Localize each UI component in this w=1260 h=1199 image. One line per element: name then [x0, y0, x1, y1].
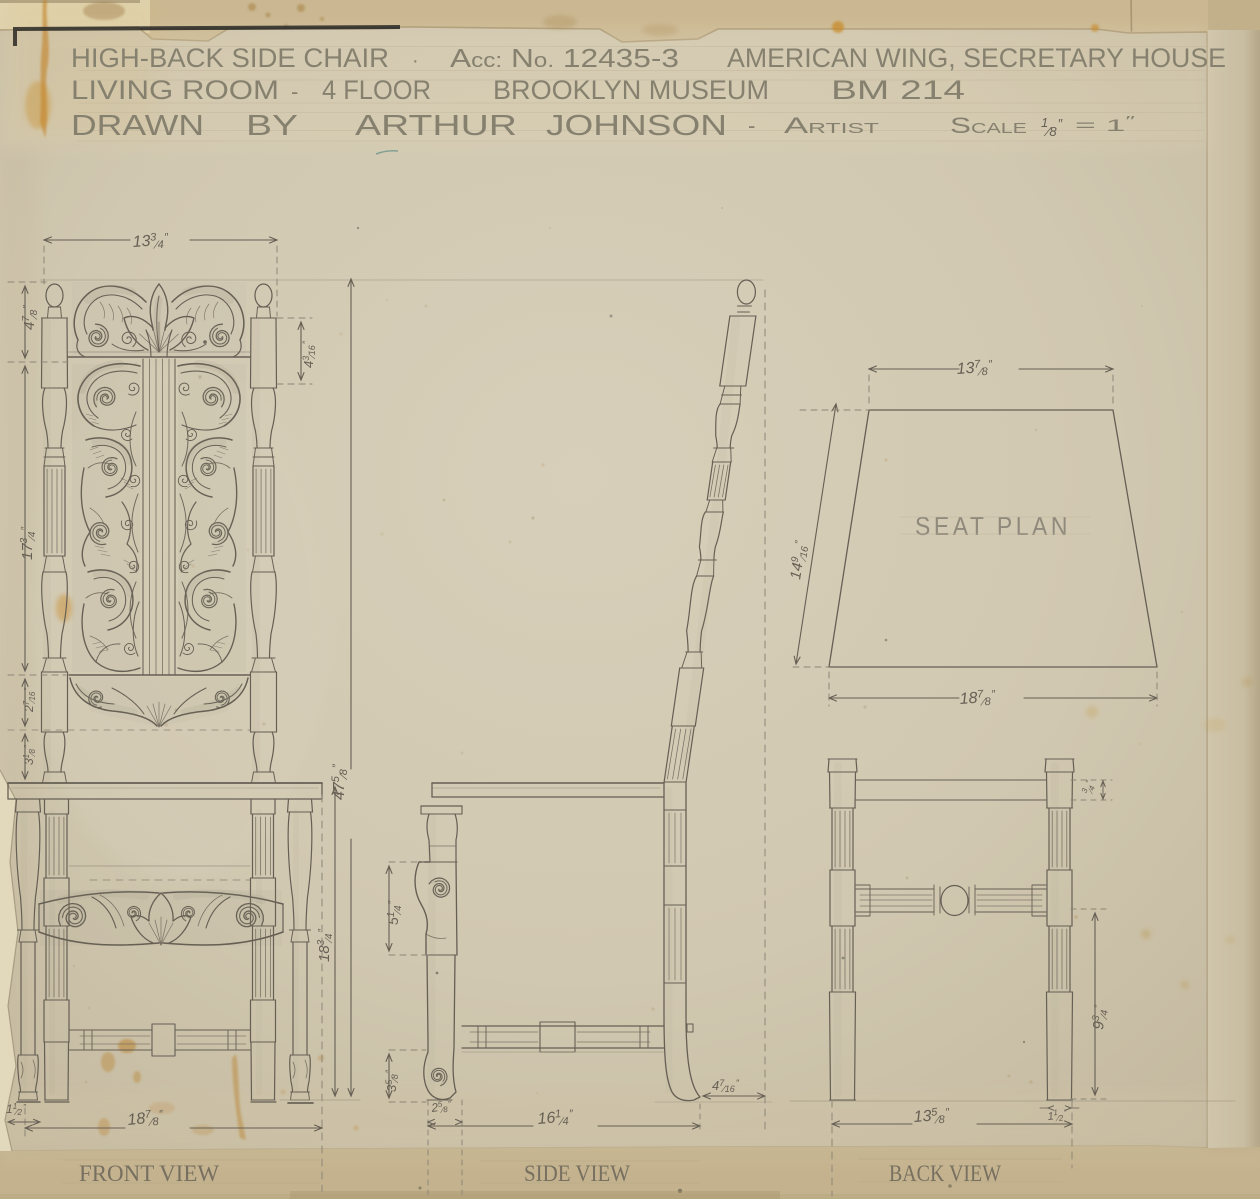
svg-text:BACK VIEW: BACK VIEW: [889, 1161, 1001, 1186]
svg-text:HIGH-BACK SIDE CHAIR: HIGH-BACK SIDE CHAIR: [71, 43, 389, 73]
svg-text:-: -: [291, 79, 298, 104]
svg-text:BY: BY: [246, 110, 298, 142]
svg-text:SIDE VIEW: SIDE VIEW: [524, 1161, 630, 1186]
svg-text:FRONT VIEW: FRONT VIEW: [79, 1161, 219, 1186]
svg-text:·: ·: [412, 50, 419, 72]
svg-text:BM 214: BM 214: [831, 75, 965, 105]
svg-text:-: -: [748, 113, 755, 138]
svg-text:4 FLOOR: 4 FLOOR: [322, 75, 431, 105]
svg-text:LIVING ROOM: LIVING ROOM: [71, 75, 279, 105]
svg-text:AMERICAN WING, SECRETARY HOUSE: AMERICAN WING, SECRETARY HOUSE: [727, 43, 1226, 73]
svg-text:SEAT PLAN: SEAT PLAN: [915, 511, 1071, 541]
svg-text:DRAWN: DRAWN: [71, 110, 204, 142]
svg-text:ARTHUR: ARTHUR: [355, 110, 517, 142]
svg-text:BROOKLYN MUSEUM: BROOKLYN MUSEUM: [493, 75, 769, 105]
svg-text:JOHNSON: JOHNSON: [546, 110, 727, 142]
